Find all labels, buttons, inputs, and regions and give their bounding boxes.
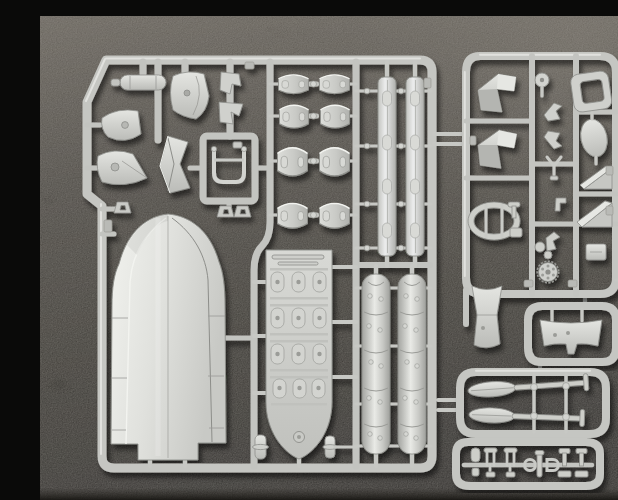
part-boat-hull-shell	[111, 214, 226, 460]
part-cowl-panel	[171, 72, 210, 119]
part-transom-vertical	[472, 286, 502, 348]
part-pontoon-half-a	[362, 274, 390, 454]
part-floor-panel	[266, 250, 332, 459]
part-gunwale-strip-a	[378, 77, 396, 256]
part-gunwale-strip-b	[406, 77, 424, 256]
part-pontoon-half-b	[398, 274, 426, 454]
part-bollard-peg-a	[253, 435, 269, 459]
part-junction-box	[586, 244, 606, 260]
part-bell-mount	[102, 110, 141, 140]
photo-model-kit-sprues	[40, 16, 618, 500]
sprue-photo-canvas	[40, 16, 618, 500]
